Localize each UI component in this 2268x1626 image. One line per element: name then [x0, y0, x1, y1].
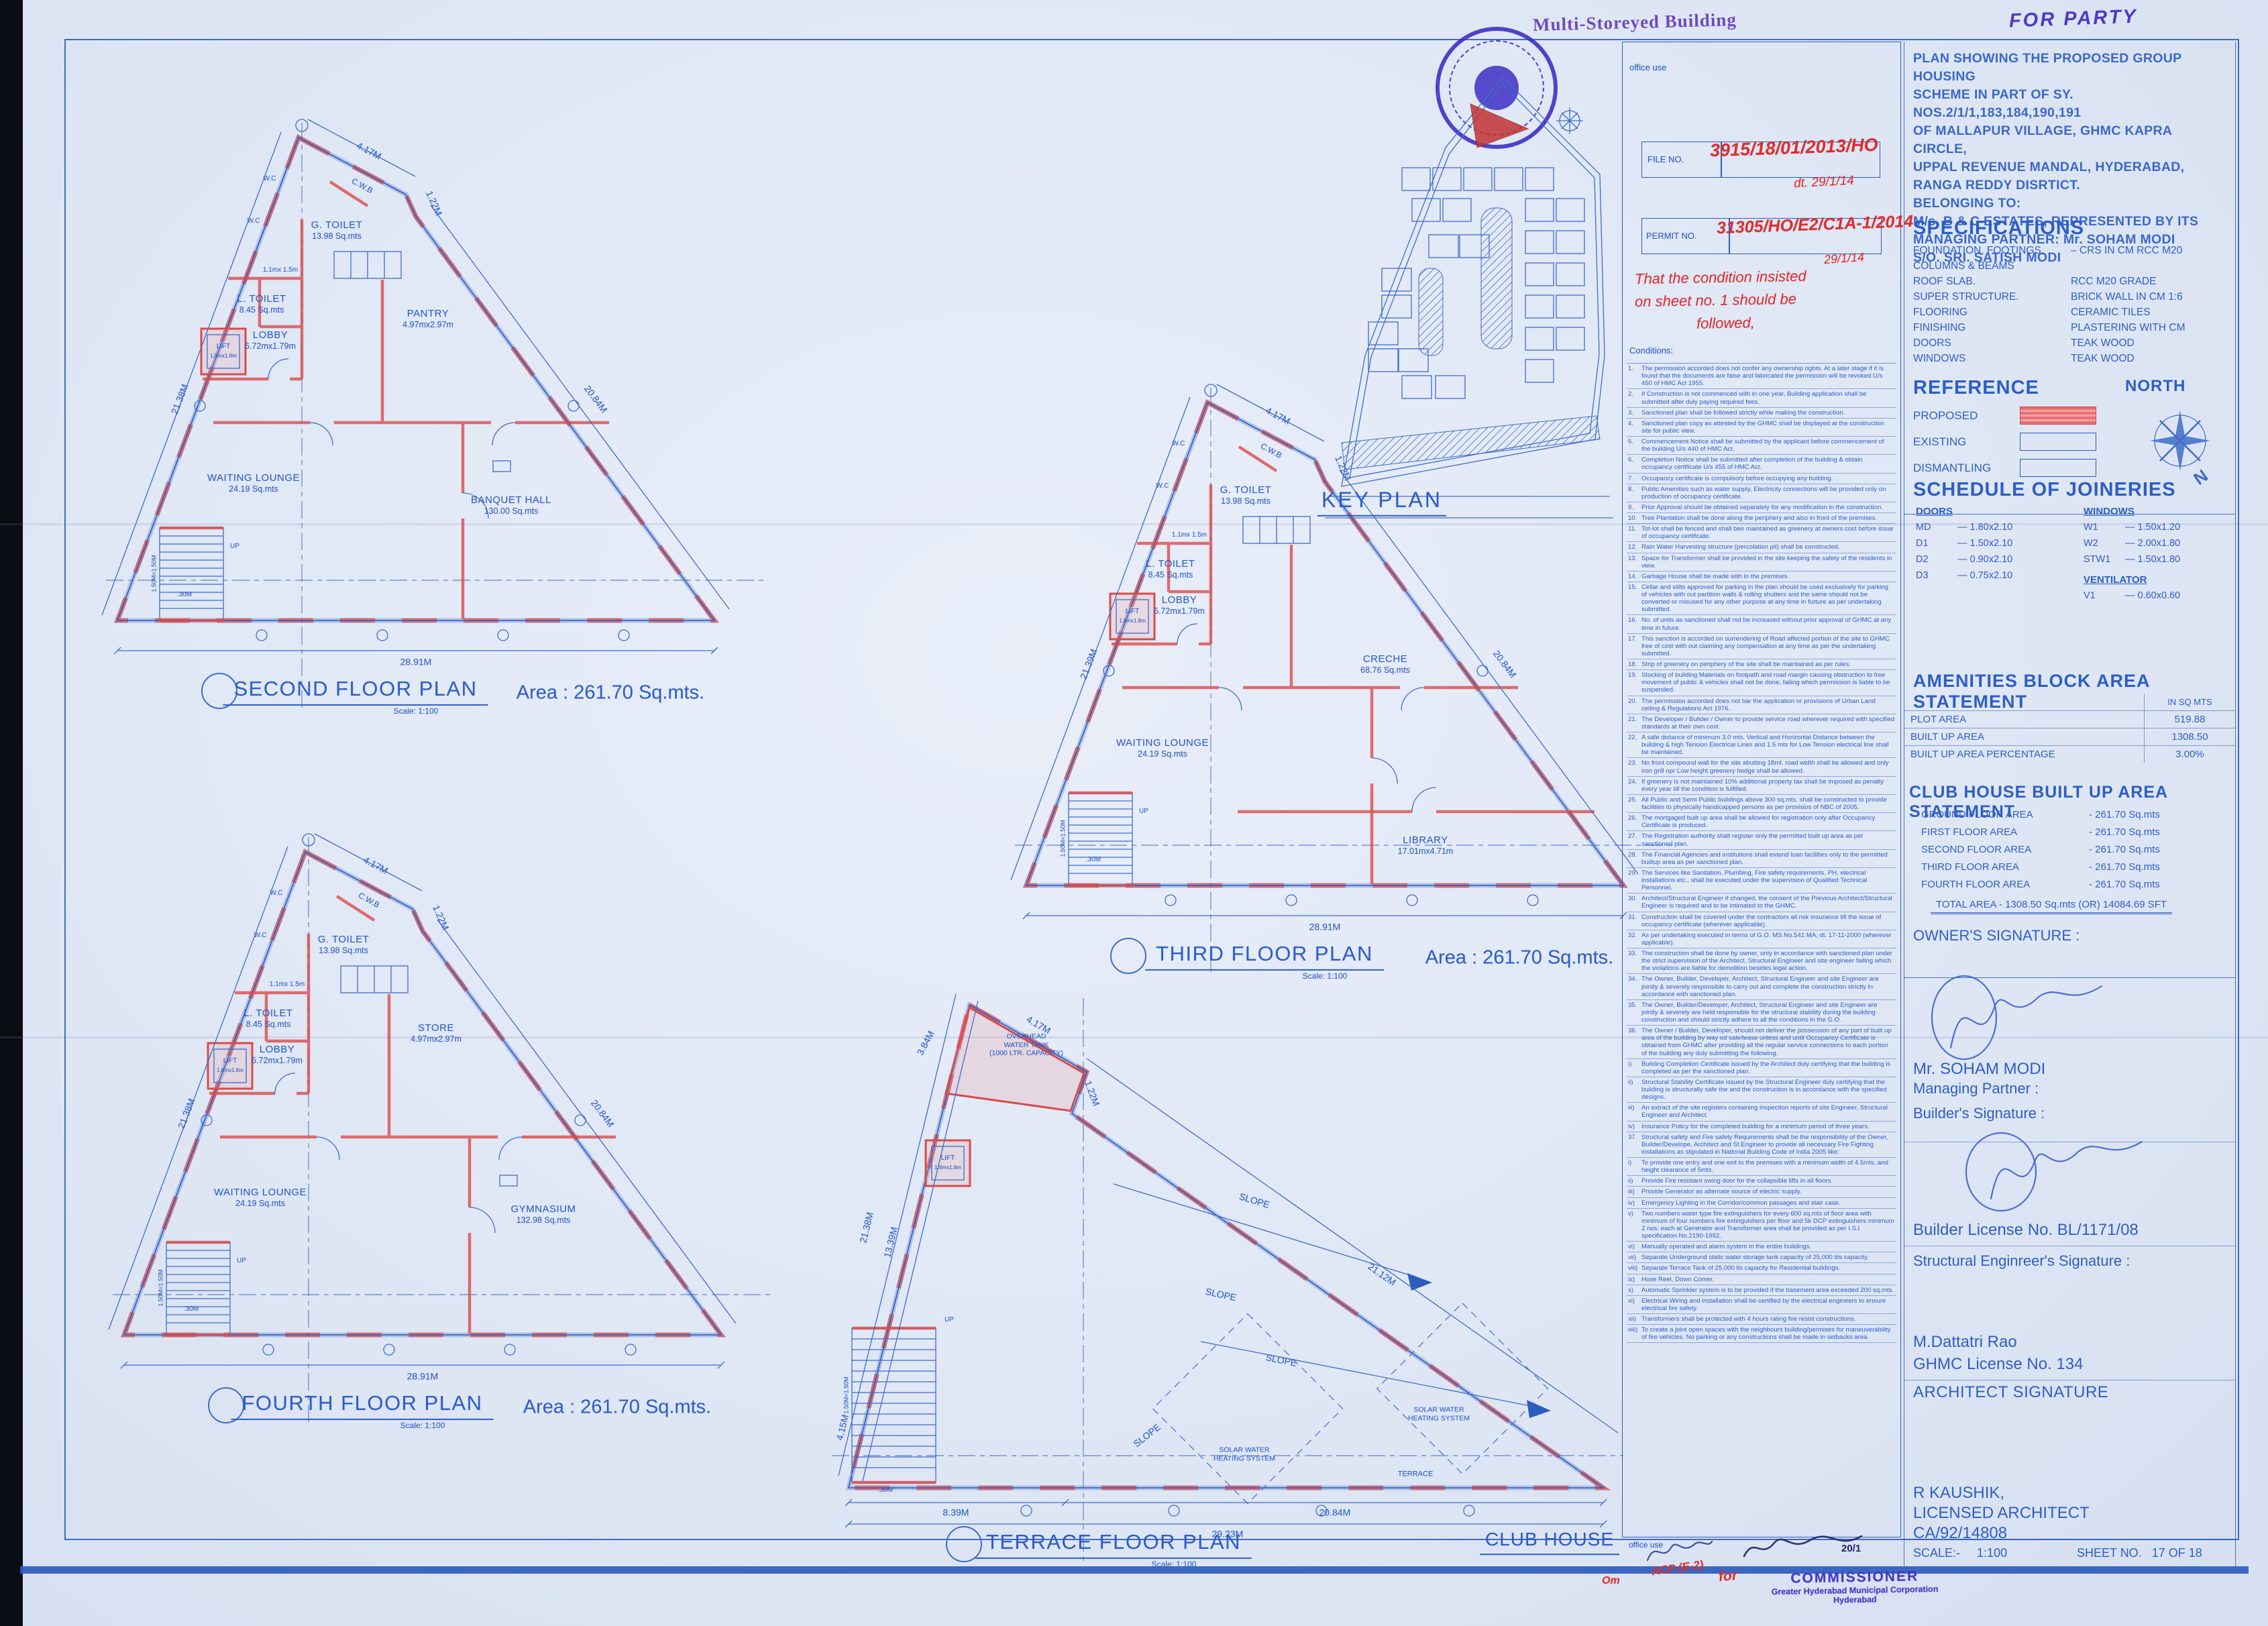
g-toilet-area: 13.98 Sq.mts [318, 946, 369, 956]
clubhouse-floor-value: - 261.70 Sq.mts [2089, 876, 2160, 893]
tank-label-3: (1000 LTR. CAPACITY) [989, 1049, 1063, 1057]
condition-text: Automatic Sprinkler system is to be prov… [1641, 1287, 1894, 1294]
condition-item: 28. The Financial Agencies and instituti… [1627, 850, 1896, 868]
tread-dim: .30M [1086, 856, 1101, 864]
architect-name: R KAUSHIK, [1913, 1484, 2245, 1503]
spec-value [2071, 258, 2235, 274]
condition-item: vi) Manually operated and alarm system i… [1627, 1242, 1896, 1252]
condition-item: 34. The Owner, Builder, Developer, Archi… [1627, 974, 1896, 999]
condition-number: 35. [1628, 1001, 1641, 1024]
pantry-label: PANTRY [407, 308, 449, 319]
door-size: — 0.90x2.10 [1957, 551, 2012, 567]
up-label: UP [237, 1257, 246, 1265]
condition-text: To provide one entry and one exit to the… [1641, 1159, 1894, 1174]
condition-text: The Owner, Builder, Developer, Architect… [1641, 975, 1894, 997]
north-header: NORTH [2125, 377, 2268, 396]
specifications-header: SPECIFICATIONS [1913, 217, 2245, 239]
condition-text: Stocking of building Materials on footpa… [1641, 671, 1894, 694]
condition-text: Garbage House shall be made with in the … [1641, 573, 1894, 580]
condition-number: xiii) [1628, 1326, 1641, 1341]
window-code: STW1 [2084, 551, 2125, 567]
window-code: W1 [2084, 519, 2125, 535]
waiting-lounge-label: WAITING LOUNGE [1116, 737, 1209, 749]
condition-item: 11. Tot-lot shall be fenced and shall be… [1627, 524, 1896, 542]
condition-number: 2. [1628, 390, 1641, 405]
ventilator-row: V1— 0.60x0.60 [2084, 588, 2231, 604]
condition-item: ii) Structural Stability Certificate iss… [1627, 1077, 1896, 1103]
condition-item: ix) Hose Reel, Down Comer. [1627, 1275, 1896, 1285]
condition-item: 22. A safe distance of minimum 3.0 mts. … [1627, 733, 1896, 758]
spec-value: – CRS IN CM RCC M20 [2071, 243, 2235, 258]
amenities-rows: PLOT AREA519.88BUILT UP AREA1308.50BUILT… [1904, 710, 2235, 763]
up-label: UP [944, 1316, 954, 1324]
condition-number: 16. [1628, 616, 1641, 631]
title-bubble [1110, 938, 1146, 974]
north-compass-icon: N [2140, 404, 2220, 491]
condition-item: 37. Structural safety and Fire safety Re… [1627, 1132, 1896, 1158]
condition-number: ii) [1628, 1079, 1641, 1101]
condition-item: 19. Stocking of building Materials on fo… [1627, 670, 1896, 696]
condition-number: iii) [1628, 1104, 1641, 1119]
red-note-line3: followed, [1696, 314, 1755, 333]
condition-number: ix) [1628, 1276, 1641, 1283]
condition-text: Manually operated and alarm system in th… [1641, 1243, 1894, 1250]
condition-text: Space for Transformer shall be provided … [1641, 555, 1894, 570]
waiting-lounge-label: WAITING LOUNGE [207, 472, 300, 484]
library-dim: 17.01mx4.71m [1398, 847, 1454, 857]
condition-item: 15. Cellar and stilts approved for parki… [1627, 582, 1896, 616]
clubhouse-floor-value: - 261.70 Sq.mts [2089, 841, 2160, 859]
g-toilet-label: G. TOILET [1220, 484, 1271, 496]
spec-row: SUPER STRUCTURE.BRICK WALL IN CM 1:6 [1904, 289, 2235, 305]
condition-item: 31. Construction shall be covered under … [1627, 912, 1896, 930]
condition-text: Structural safety and Fire safety Requir… [1641, 1134, 1894, 1156]
condition-text: The permission accorded does not bar the… [1641, 698, 1894, 712]
project-title-line: UPPAL REVENUE MANDAL, HYDERABAD, [1913, 158, 2228, 176]
blueprint-sheet: Multi-Storeyed Building FOR PARTY W.C [0, 0, 2268, 1626]
red-note-line1: That the condition insisted [1635, 268, 1806, 288]
condition-number: 24. [1628, 778, 1641, 793]
clubhouse-floor-value: - 261.70 Sq.mts [2089, 806, 2160, 824]
spec-row: FOUNDATION, FOOTINGS,– CRS IN CM RCC M20 [1904, 243, 2235, 258]
condition-number: 8. [1628, 486, 1641, 500]
door-code: MD [1916, 519, 1957, 535]
third-floor-title: THIRD FLOOR PLAN [1145, 941, 1384, 971]
window-row: W2— 2.00x1.80 [2084, 535, 2231, 551]
spec-value: TEAK WOOD [2071, 335, 2235, 351]
project-title-line: BELONGING TO: [1913, 195, 2228, 213]
condition-text: Emergency Lighting in the Corridor/commo… [1641, 1199, 1894, 1207]
proposed-label: PROPOSED [1913, 409, 1978, 423]
condition-item: 21. The Developer / Builder / Owner to p… [1627, 714, 1896, 733]
condition-number: 33. [1628, 950, 1641, 972]
window-code: W2 [2084, 535, 2125, 551]
condition-text: Construction shall be covered under the … [1641, 914, 1894, 928]
spec-row: ROOF SLAB.RCC M20 GRADE [1904, 274, 2235, 289]
l-toilet-label: L. TOILET [244, 1008, 292, 1019]
l-toilet-area: 8.45 Sq.mts [1146, 570, 1195, 580]
spec-label: WINDOWS [1904, 351, 2071, 366]
waiting-lounge-area: 24.19 Sq.mts [1116, 749, 1209, 759]
architect-signature-header: ARCHITECT SIGNATURE [1913, 1383, 2245, 1402]
condition-text: Prior Approval should be obtained separa… [1641, 504, 1894, 511]
amenities-row: BUILT UP AREA PERCENTAGE3.00% [1904, 745, 2235, 763]
condition-text: The Services like Sanitation, Plumbing, … [1641, 869, 1894, 891]
condition-item: 24. If greenery is not maintained 10% ad… [1627, 777, 1896, 795]
lift-dim: 1.8mx1.8m [217, 1067, 244, 1074]
door-size: — 1.80x2.10 [1957, 519, 2012, 535]
condition-item: 2. If Construction is not commenced with… [1627, 389, 1896, 407]
condition-number: 22. [1628, 734, 1641, 756]
condition-number: i) [1628, 1159, 1641, 1174]
spec-row: DOORSTEAK WOOD [1904, 335, 2235, 351]
key-plan-drawing [1301, 67, 1623, 537]
structural-signature-header: Structural Enginreer's Signature : [1913, 1252, 2245, 1270]
condition-item: 18. Strip of greenery on periphery of th… [1627, 659, 1896, 670]
condition-number: 7. [1628, 475, 1641, 482]
condition-item: vii) Separate Underground static water s… [1627, 1252, 1896, 1263]
condition-text: Rain Water Harvesting structure (percola… [1641, 543, 1894, 551]
condition-text: The mortgaged built up area shall be all… [1641, 814, 1894, 829]
sheet-row: SHEET NO. 17 OF 18 [2077, 1546, 2268, 1560]
condition-number: 6. [1628, 456, 1641, 471]
amenities-value: 1308.50 [2144, 728, 2235, 745]
solar-label-2: HEATING SYSTEM [1213, 1454, 1275, 1462]
condition-number: 12. [1628, 543, 1641, 551]
condition-item: 8. Public Amenities such as water supply… [1627, 484, 1896, 502]
condition-number: iii) [1628, 1188, 1641, 1195]
condition-text: The Financial Agencies and institutions … [1641, 851, 1894, 866]
condition-number: xii) [1628, 1315, 1641, 1323]
condition-text: Electrical Wiring and installation shall… [1641, 1297, 1894, 1312]
wc-dim-label: 1.1mx 1.5m [263, 266, 298, 274]
condition-number: iv) [1628, 1123, 1641, 1130]
amenities-label: BUILT UP AREA [1904, 728, 2144, 745]
condition-item: 36. The Owner / Builder, Developer, shou… [1627, 1026, 1896, 1059]
spec-label: DOORS [1904, 335, 2071, 351]
door-row: MD— 1.80x2.10 [1916, 519, 2070, 535]
banquet-hall-label: BANQUET HALL [471, 494, 551, 506]
clubhouse-floor-label: THIRD FLOOR AREA [1914, 859, 2089, 876]
condition-text: If greenery is not maintained 10% additi… [1641, 778, 1894, 793]
red-scribble: Om [1602, 1575, 1620, 1587]
condition-number: 13. [1628, 555, 1641, 570]
condition-number: vi) [1628, 1243, 1641, 1250]
spec-label: COLUMNS & BEAMS [1904, 258, 2071, 274]
condition-number: 30. [1628, 895, 1641, 910]
amenities-value: 3.00% [2144, 746, 2235, 763]
condition-item: v) Two numbers water type fire extinguis… [1627, 1209, 1896, 1242]
condition-text: An extract of the site registers contain… [1641, 1104, 1894, 1119]
lobby-label: LOBBY [1162, 594, 1197, 606]
g-toilet-area: 13.98 Sq.mts [1220, 496, 1271, 506]
windows-list: W1— 1.50x1.20W2— 2.00x1.80STW1— 1.50x1.8… [2084, 519, 2231, 567]
condition-number: 27. [1628, 832, 1641, 847]
condition-number: 3. [1628, 409, 1641, 417]
wc-dim-label: 1.1mx 1.5m [1172, 531, 1207, 539]
store-label: STORE [418, 1022, 454, 1034]
condition-text: To create a joint open spaces with the n… [1641, 1326, 1894, 1341]
condition-item: 14. Garbage House shall be made with in … [1627, 572, 1896, 582]
title-block: PLAN SHOWING THE PROPOSED GROUP HOUSINGS… [1904, 42, 2235, 1566]
door-size: — 1.50x2.10 [1957, 535, 2012, 551]
wc-label: W.C [270, 889, 283, 898]
tread-dim: .30M [184, 1305, 199, 1313]
project-title-line: SCHEME IN PART OF SY. NOS.2/1/1,183,184,… [1913, 86, 2228, 122]
condition-text: Provide Fire resistant swing door for th… [1641, 1177, 1894, 1185]
dismantling-label: DISMANTLING [1913, 462, 1991, 475]
structural-license: GHMC License No. 134 [1913, 1355, 2245, 1374]
l-toilet-area: 8.45 Sq.mts [237, 305, 286, 315]
condition-item: iii) Provide Generator as alternate sour… [1627, 1187, 1896, 1197]
fourth-floor-title: FOURTH FLOOR PLAN [231, 1391, 493, 1420]
creche-area: 68.76 Sq.mts [1360, 665, 1410, 675]
condition-item: 12. Rain Water Harvesting structure (per… [1627, 542, 1896, 553]
condition-item: viii) Separate Terrace Tank of 25,000 lt… [1627, 1263, 1896, 1274]
door-code: D1 [1916, 535, 1957, 551]
g-toilet-label: G. TOILET [318, 934, 369, 945]
office-use-label: office use [1629, 62, 1666, 72]
owners-signature-header: OWNER'S SIGNATURE : [1913, 927, 2245, 944]
architect-reg-no: CA/92/14808 [1913, 1524, 2245, 1543]
clubhouse-total: TOTAL AREA - 1308.50 Sq.mts (OR) 14084.6… [1931, 899, 2172, 914]
condition-text: Occupancy certificate is compulsory befo… [1641, 475, 1894, 482]
condition-text: The Owner, Builder/Developer, Architect,… [1641, 1001, 1894, 1024]
condition-number: 19. [1628, 671, 1641, 694]
clubhouse-floor-label: FIRST FLOOR AREA [1914, 824, 2089, 841]
l-toilet-label: L. TOILET [237, 293, 286, 305]
wc-label: W.C [254, 932, 267, 940]
waiting-lounge-area: 24.19 Sq.mts [214, 1199, 307, 1209]
condition-item: iv) Emergency Lighting in the Corridor/c… [1627, 1198, 1896, 1209]
second-floor-scale: Scale: 1:100 [394, 706, 439, 716]
condition-text: As per undertaking executed in terms of … [1641, 932, 1894, 946]
up-label: UP [230, 543, 239, 551]
wc-label: W.C [248, 217, 260, 225]
g-toilet-label: G. TOILET [311, 219, 362, 231]
reference-dismantling: DISMANTLING [1904, 455, 2108, 481]
file-no-date: dt. 29/1/14 [1793, 174, 1854, 192]
dim-base-2: 20.84M [1319, 1507, 1351, 1519]
condition-number: 23. [1628, 759, 1641, 774]
condition-number: 31. [1628, 914, 1641, 928]
condition-item: 26. The mortgaged built up area shall be… [1627, 813, 1896, 831]
condition-number: 17. [1628, 635, 1641, 657]
wc-label: W.C [1156, 482, 1169, 490]
window-row: STW1— 1.50x1.80 [2084, 551, 2231, 567]
wc-dim-label: 1.1mx 1.5m [270, 981, 305, 989]
clubhouse-floor-label: SECOND FLOOR AREA [1914, 841, 2089, 859]
condition-item: 33. The construction shall be done by ow… [1627, 949, 1896, 974]
condition-item: 7. Occupancy certificate is compulsory b… [1627, 474, 1896, 484]
tread-dim: .30M [177, 591, 192, 599]
specifications-rows: FOUNDATION, FOOTINGS,– CRS IN CM RCC M20… [1904, 243, 2235, 366]
condition-text: The Developer / Builder / Owner to provi… [1641, 716, 1894, 730]
condition-number: ii) [1628, 1177, 1641, 1185]
waiting-lounge-area: 24.19 Sq.mts [207, 484, 300, 494]
condition-item: 16. No. of units as sanctioned shall not… [1627, 615, 1896, 633]
amenities-unit: IN SQ MTS [2144, 694, 2235, 710]
condition-item: 10. Tree Plantation shall be done along … [1627, 513, 1896, 524]
condition-text: The Owner / Builder, Developer, should n… [1641, 1027, 1894, 1057]
reference-items: PROPOSED EXISTING DISMANTLING [1904, 402, 2108, 481]
condition-text: Commencement Notice shall be submitted b… [1641, 438, 1894, 453]
condition-item: 29. The Services like Sanitation, Plumbi… [1627, 868, 1896, 893]
condition-item: 3. Sanctioned plan shall be followed str… [1627, 408, 1896, 419]
condition-item: 9. Prior Approval should be obtained sep… [1627, 502, 1896, 513]
condition-number: 36. [1628, 1027, 1641, 1057]
condition-number: 32. [1628, 932, 1641, 946]
stair-dim: 1.50M=1.50M [158, 1269, 165, 1306]
condition-number: i) [1628, 1061, 1641, 1075]
second-floor-title: SECOND FLOOR PLAN [223, 676, 488, 706]
dismantling-swatch [2020, 459, 2096, 477]
reference-existing: EXISTING [1904, 429, 2108, 455]
third-floor-area: Area : 261.70 Sq.mts. [1425, 946, 1613, 970]
clubhouse-floor-value: - 261.70 Sq.mts [2089, 824, 2160, 841]
scan-edge-strip [0, 0, 23, 1626]
spec-row: FINISHINGPLASTERING WITH CM [1904, 320, 2235, 335]
owner-name: Mr. SOHAM MODI [1913, 1060, 2245, 1079]
condition-text: Provide Generator as alternate source of… [1641, 1188, 1894, 1195]
window-size: — 2.00x1.80 [2125, 535, 2180, 551]
amenities-unit-row: IN SQ MTS [1904, 694, 2235, 710]
condition-text: Transformers shall be protected with 4 h… [1641, 1315, 1894, 1323]
condition-item: 4. Sanctioned plan copy as attested by t… [1627, 419, 1896, 437]
owner-signature [1924, 961, 2125, 1068]
condition-text: Structural Stability Certificate issued … [1641, 1079, 1894, 1101]
builder-signature [1944, 1118, 2159, 1219]
banquet-hall-area: 130.00 Sq.mts [471, 506, 551, 517]
condition-number: 29. [1628, 869, 1641, 891]
spec-label: FOUNDATION, FOOTINGS, [1904, 243, 2071, 258]
condition-number: 20. [1628, 698, 1641, 712]
spec-value: RCC M20 GRADE [2071, 274, 2235, 289]
condition-number: xi) [1628, 1297, 1641, 1312]
windows-block: WINDOWS W1— 1.50x1.20W2— 2.00x1.80STW1— … [2084, 506, 2231, 604]
existing-label: EXISTING [1913, 435, 1966, 449]
condition-text: Tree Plantation shall be done along the … [1641, 514, 1894, 522]
dim-base-1: 8.39M [943, 1507, 969, 1519]
reference-proposed: PROPOSED [1904, 402, 2108, 429]
ventilator-size: — 0.60x0.60 [2125, 588, 2180, 604]
ventilator-list: V1— 0.60x0.60 [2084, 588, 2231, 604]
clubhouse-floor-value: - 261.70 Sq.mts [2089, 859, 2160, 876]
stair-dim: 1.50M=1.50M [151, 555, 158, 592]
second-floor-area: Area : 261.70 Sq.mts. [517, 682, 704, 705]
scale-value: 1:100 [1977, 1546, 2007, 1560]
doors-title: DOORS [1916, 506, 2070, 517]
condition-number: 1. [1628, 365, 1641, 387]
clubhouse-floor-label: GROUND FLOOR AREA [1914, 806, 2089, 824]
gymnasium-label: GYMNASIUM [510, 1203, 576, 1215]
condition-text: Tot-lot shall be fenced and shall bee ma… [1641, 525, 1894, 540]
up-label: UP [1139, 808, 1148, 816]
door-row: D1— 1.50x2.10 [1916, 535, 2070, 551]
lift-label: LIFT [217, 343, 231, 351]
spec-value: BRICK WALL IN CM 1:6 [2071, 289, 2235, 305]
ventilator-code: V1 [2084, 588, 2125, 604]
permit-no-value: 31305/HO/E2/C1A-1/2014 [1717, 212, 1914, 238]
condition-text: Completion Notice shall be submitted aft… [1641, 456, 1894, 471]
condition-item: 27. The Registration authority shall reg… [1627, 831, 1896, 849]
architect-title-line: LICENSED ARCHITECT [1913, 1504, 2245, 1523]
l-toilet-area: 8.45 Sq.mts [244, 1020, 292, 1030]
lift-dim: 1.8mx1.8m [1119, 618, 1146, 625]
condition-text: The permission accorded does not confer … [1641, 365, 1894, 387]
condition-number: 10. [1628, 514, 1641, 522]
lobby-dim: 5.72mx1.79m [1154, 606, 1205, 616]
condition-number: iv) [1628, 1199, 1641, 1207]
lift-label: LIFT [941, 1154, 955, 1162]
condition-number: x) [1628, 1287, 1641, 1294]
for-party-stamp: FOR PARTY [2008, 6, 2138, 33]
terrace-floor-plan: OVERHEADWATER TANK(1000 LTR. CAPACITY) L… [825, 993, 1630, 1570]
condition-item: 20. The permission accorded does not bar… [1627, 696, 1896, 714]
amenities-row: PLOT AREA519.88 [1904, 710, 2235, 728]
lobby-label: LOBBY [260, 1044, 295, 1055]
terrace-floor-plan-drawing [825, 993, 1630, 1570]
condition-item: xi) Electrical Wiring and installation s… [1627, 1296, 1896, 1314]
condition-number: 14. [1628, 573, 1641, 580]
condition-number: 21. [1628, 716, 1641, 730]
condition-item: iv) Insurance Policy for the completed b… [1627, 1122, 1896, 1132]
condition-number: vii) [1628, 1254, 1641, 1261]
door-code: D3 [1916, 567, 1957, 584]
spec-row: WINDOWSTEAK WOOD [1904, 351, 2235, 366]
condition-item: 35. The Owner, Builder/Developer, Archit… [1627, 1000, 1896, 1026]
condition-number: 25. [1628, 796, 1641, 811]
condition-text: The Registration authority shall registe… [1641, 832, 1894, 847]
sheet-value: 17 OF 18 [2152, 1546, 2202, 1560]
condition-item: i) Building Completion Certificate issue… [1627, 1059, 1896, 1077]
window-size: — 1.50x1.80 [2125, 551, 2180, 567]
l-toilet-label: L. TOILET [1146, 558, 1195, 570]
wc-label: W.C [264, 175, 276, 183]
clubhouse-row: GROUND FLOOR AREA- 261.70 Sq.mts [1914, 806, 2223, 824]
condition-text: Hose Reel, Down Comer. [1641, 1276, 1894, 1283]
dim-base: 28.91M [1309, 922, 1341, 933]
condition-item: xiii) To create a joint open spaces with… [1627, 1325, 1896, 1343]
red-note-line2: on sheet no. 1 should be [1635, 290, 1796, 311]
spec-label: FLOORING [1904, 305, 2071, 320]
condition-number: 18. [1628, 661, 1641, 668]
amenities-row: BUILT UP AREA1308.50 [1904, 728, 2235, 745]
condition-number: 11. [1628, 525, 1641, 540]
condition-item: 25. All Public and Semi Public buildings… [1627, 795, 1896, 813]
condition-item: 5. Commencement Notice shall be submitte… [1627, 437, 1896, 455]
lift-dim: 1.8mx1.8m [210, 353, 237, 360]
key-plan-title: KEY PLAN [1317, 487, 1446, 517]
amenities-unit-spacer [1904, 694, 2144, 710]
lift-label: LIFT [223, 1057, 237, 1065]
terrace-floor-scale: Scale: 1:100 [1152, 1560, 1197, 1569]
condition-number: viii) [1628, 1264, 1641, 1272]
project-title-line: PLAN SHOWING THE PROPOSED GROUP HOUSING [1913, 50, 2228, 86]
conditions-list: 1. The permission accorded does not conf… [1627, 363, 1896, 1531]
spec-value: TEAK WOOD [2071, 351, 2235, 366]
ventilator-title: VENTILATOR [2084, 574, 2231, 586]
condition-text: Strip of greenery on periphery of the si… [1641, 661, 1894, 668]
lift-label: LIFT [1126, 608, 1140, 616]
condition-number: 15. [1628, 584, 1641, 614]
for-word: for [1718, 1568, 1738, 1585]
doors-block: DOORS MD— 1.80x2.10D1— 1.50x2.10D2— 0.90… [1916, 506, 2070, 584]
joineries-header: SCHEDULE OF JOINERIES [1913, 479, 2245, 501]
third-floor-scale: Scale: 1:100 [1303, 971, 1348, 981]
pantry-dim: 4.97mx2.97m [402, 320, 453, 330]
spec-row: COLUMNS & BEAMS [1904, 258, 2235, 274]
